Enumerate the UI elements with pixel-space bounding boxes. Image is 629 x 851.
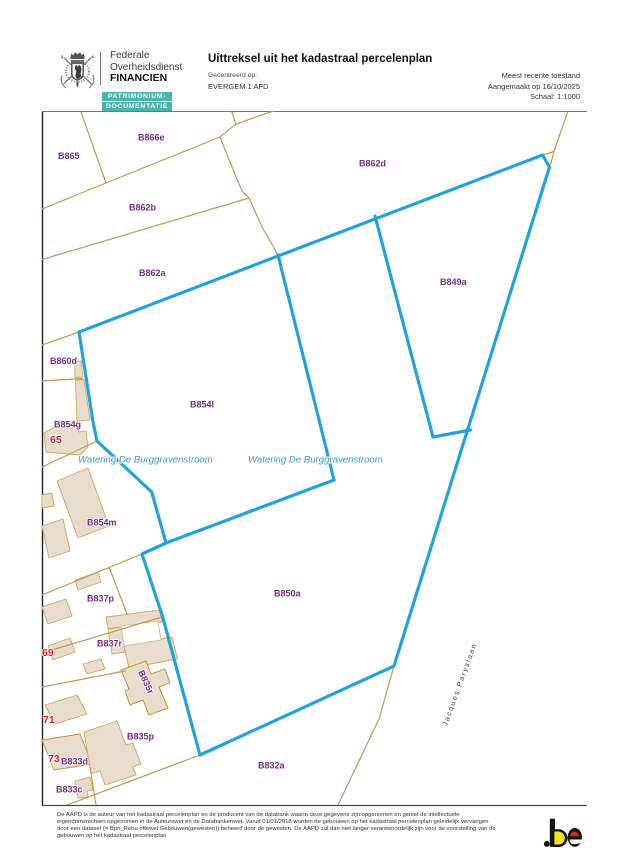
svg-text:71: 71 (43, 714, 55, 726)
svg-text:B833d: B833d (61, 757, 88, 767)
svg-text:Watering De Burggravenstroom: Watering De Burggravenstroom (248, 455, 383, 466)
svg-text:B862a: B862a (139, 268, 167, 278)
svg-text:B837p: B837p (87, 594, 115, 604)
svg-text:69: 69 (42, 647, 54, 659)
svg-text:B837r: B837r (97, 639, 123, 649)
svg-text:B865: B865 (58, 151, 80, 161)
svg-text:B854g: B854g (54, 420, 81, 430)
svg-text:B854l: B854l (190, 400, 214, 410)
svg-text:B862b: B862b (129, 203, 157, 213)
svg-text:B866e: B866e (138, 133, 165, 143)
svg-text:B862d: B862d (359, 159, 386, 169)
svg-text:B835p: B835p (127, 732, 155, 742)
svg-text:73: 73 (48, 753, 60, 765)
svg-text:B833c: B833c (56, 785, 83, 795)
svg-text:B854m: B854m (87, 518, 117, 528)
svg-text:65: 65 (50, 434, 62, 446)
svg-text:Jacques Paryslaan: Jacques Paryslaan (440, 641, 479, 727)
svg-text:Watering De Burggravenstroom: Watering De Burggravenstroom (78, 455, 213, 466)
svg-text:B849a: B849a (440, 277, 468, 287)
svg-text:B832a: B832a (258, 761, 286, 771)
svg-text:B860d: B860d (50, 356, 77, 366)
svg-text:B850a: B850a (274, 589, 302, 599)
